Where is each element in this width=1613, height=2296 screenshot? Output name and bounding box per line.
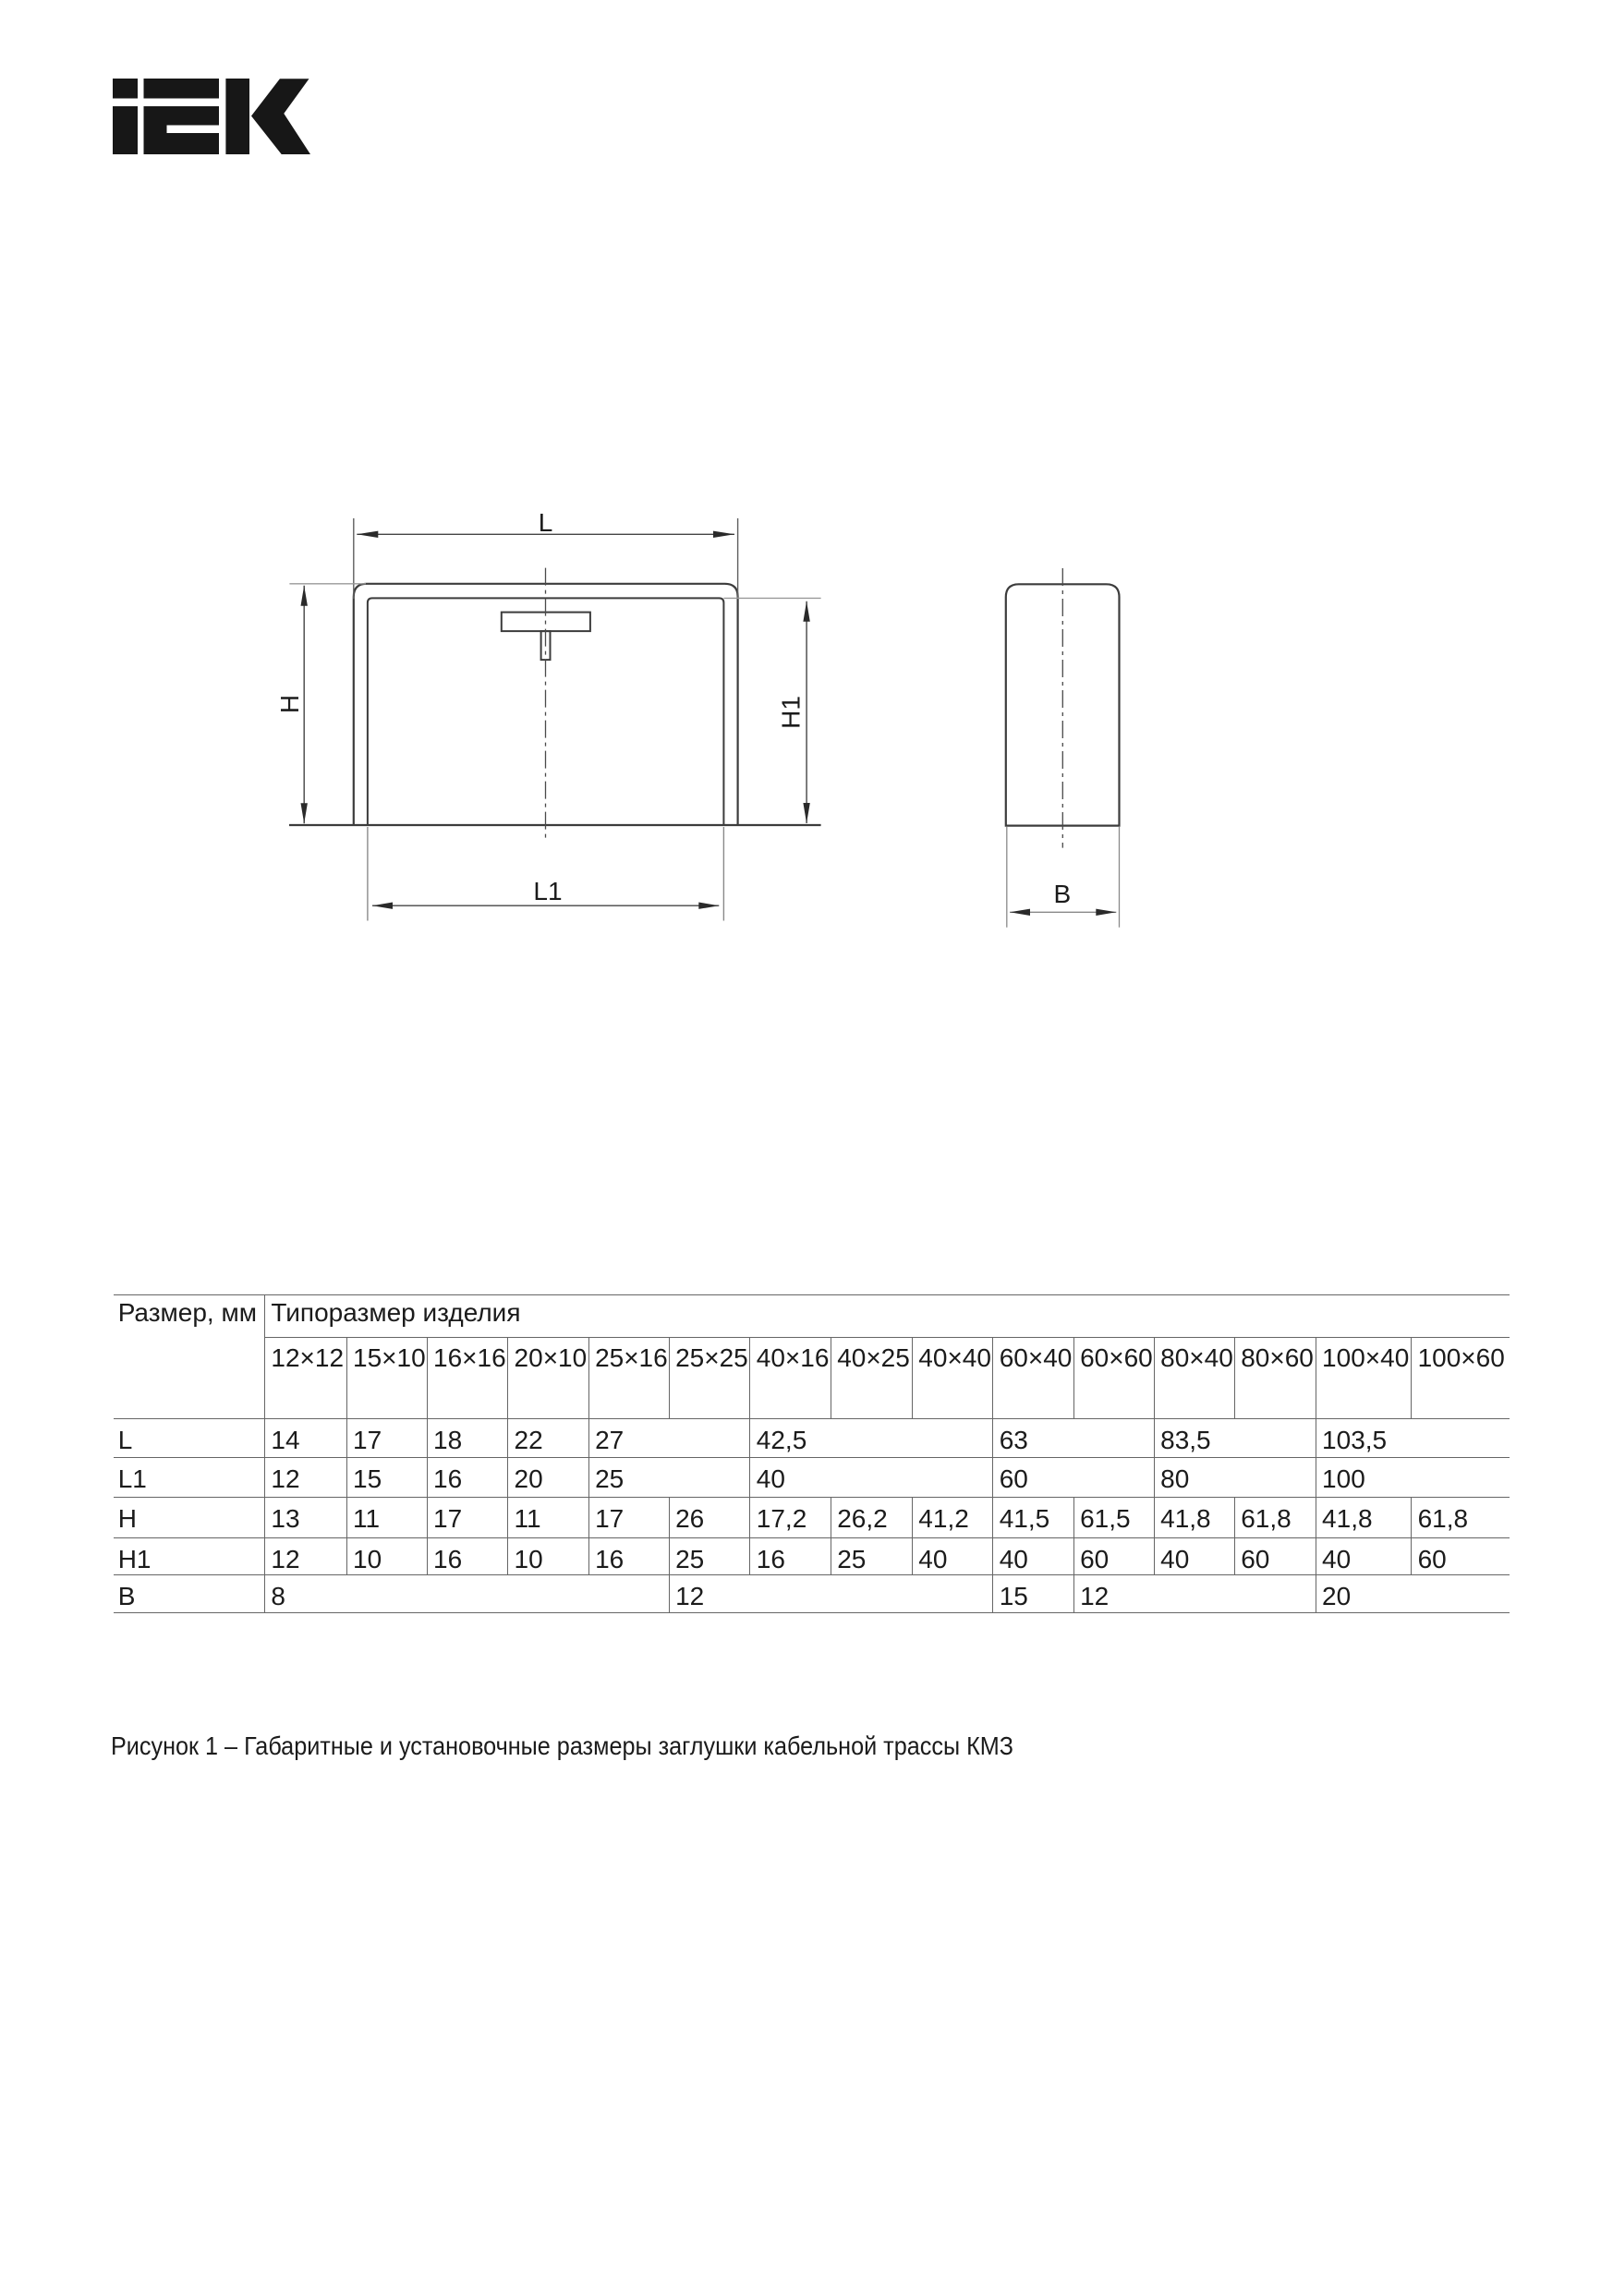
svg-text:L1: L1 <box>533 877 562 905</box>
svg-text:B: B <box>1054 880 1072 908</box>
svg-text:L: L <box>539 508 553 537</box>
svg-text:H1: H1 <box>777 696 806 729</box>
svg-text:H: H <box>275 695 304 713</box>
